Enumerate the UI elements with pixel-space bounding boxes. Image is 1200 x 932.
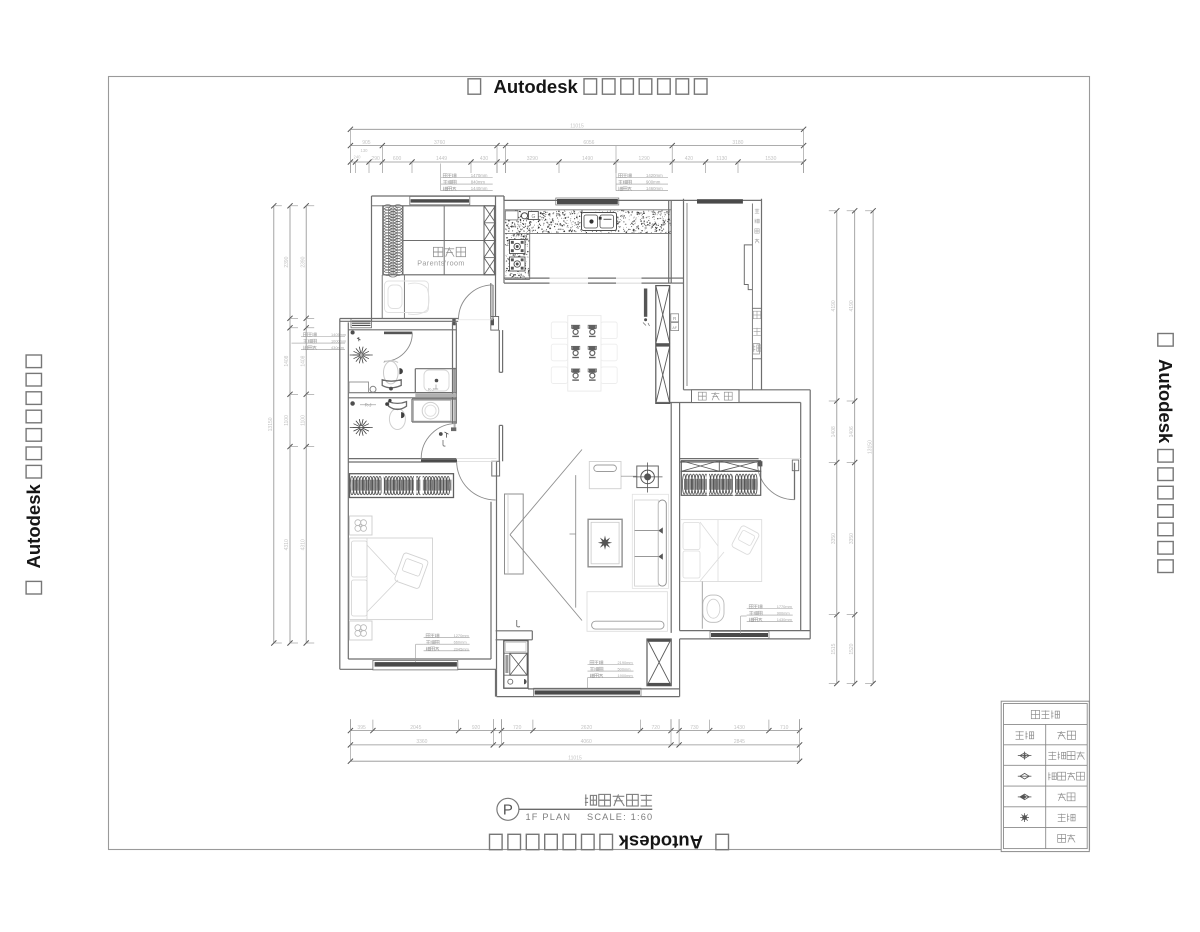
svg-text:1408: 1408 [284, 355, 290, 366]
svg-text:4190: 4190 [849, 300, 855, 311]
svg-text:1406: 1406 [849, 426, 855, 437]
svg-text:4310: 4310 [300, 539, 306, 550]
svg-text:R-J: R-J [428, 388, 434, 392]
svg-text:130: 130 [361, 148, 369, 153]
svg-text:600: 600 [393, 156, 402, 162]
svg-text:290: 290 [371, 156, 380, 162]
svg-text:3350: 3350 [849, 533, 855, 544]
svg-text:710: 710 [780, 725, 789, 731]
svg-text:720: 720 [652, 725, 661, 731]
svg-text:3350: 3350 [831, 533, 837, 544]
svg-text:2390: 2390 [284, 256, 290, 267]
svg-text:730: 730 [690, 725, 699, 731]
svg-text:1F PLAN: 1F PLAN [526, 812, 572, 822]
svg-text:395: 395 [357, 725, 366, 731]
svg-text:P: P [503, 802, 513, 819]
svg-text:G: G [531, 214, 535, 220]
svg-text:3180: 3180 [732, 140, 743, 146]
svg-text:1430: 1430 [734, 725, 745, 731]
svg-text:11015: 11015 [570, 124, 584, 130]
svg-text:1530: 1530 [765, 156, 776, 162]
svg-text:1100: 1100 [284, 415, 290, 426]
svg-text:3360: 3360 [416, 739, 427, 745]
svg-text:920: 920 [472, 725, 481, 731]
svg-text:4060: 4060 [581, 739, 592, 745]
svg-text:6056: 6056 [583, 140, 594, 146]
svg-text:430: 430 [480, 156, 489, 162]
svg-text:Parents’room: Parents’room [417, 259, 465, 268]
svg-text:1490: 1490 [582, 156, 593, 162]
svg-text:Autodesk: Autodesk [1155, 359, 1176, 444]
svg-text:1408: 1408 [831, 426, 837, 437]
svg-text:1408: 1408 [300, 355, 306, 366]
svg-text:1515: 1515 [831, 643, 837, 654]
svg-text:1290: 1290 [639, 156, 650, 162]
svg-text:4190: 4190 [831, 300, 837, 311]
svg-text:720: 720 [513, 725, 522, 731]
svg-text:2045: 2045 [410, 725, 421, 731]
svg-text:240: 240 [354, 155, 362, 160]
svg-text:3290: 3290 [527, 156, 538, 162]
svg-text:2845: 2845 [734, 739, 745, 745]
svg-text:11015: 11015 [568, 755, 582, 761]
svg-text:Autodesk: Autodesk [618, 832, 703, 853]
svg-text:2390: 2390 [300, 256, 306, 267]
svg-text:1100: 1100 [300, 415, 306, 426]
svg-text:Autodesk: Autodesk [494, 76, 579, 97]
svg-text:13150: 13150 [268, 417, 274, 431]
svg-text:3760: 3760 [434, 140, 445, 146]
svg-text:2620: 2620 [581, 725, 592, 731]
svg-text:420: 420 [685, 156, 694, 162]
svg-text:13150: 13150 [867, 440, 873, 454]
svg-text:4310: 4310 [284, 539, 290, 550]
svg-text:Autodesk: Autodesk [23, 484, 44, 569]
svg-text:SCALE: 1:60: SCALE: 1:60 [587, 812, 653, 822]
svg-text:1130: 1130 [716, 156, 727, 162]
svg-text:905: 905 [362, 140, 371, 146]
svg-text:1449: 1449 [436, 156, 447, 162]
svg-text:AF: AF [672, 326, 677, 330]
svg-text:1520: 1520 [849, 643, 855, 654]
